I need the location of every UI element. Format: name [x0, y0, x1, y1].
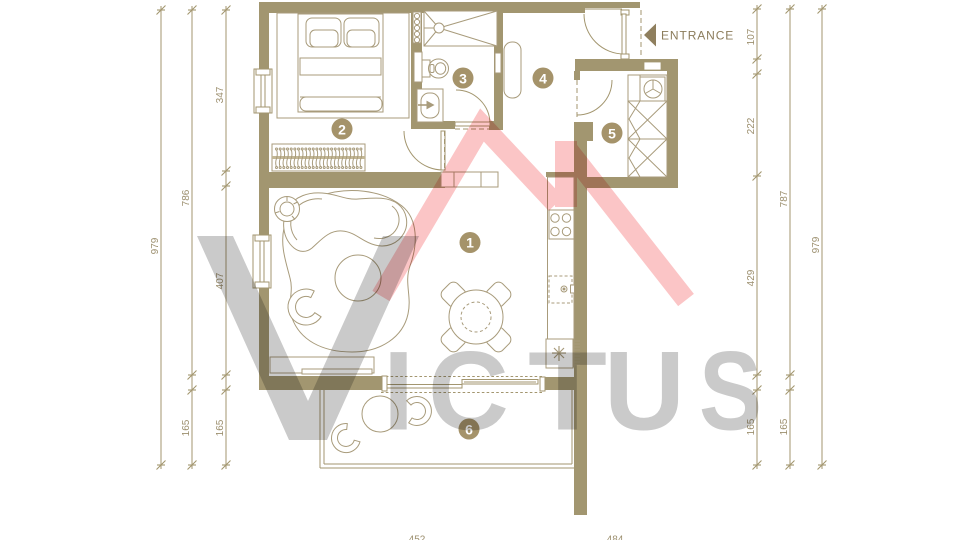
svg-text:ENTRANCE: ENTRANCE [661, 29, 734, 43]
svg-text:484: 484 [607, 535, 624, 540]
svg-text:347: 347 [215, 86, 226, 103]
svg-text:165: 165 [779, 418, 790, 435]
svg-text:T: T [528, 329, 607, 454]
svg-text:222: 222 [746, 117, 757, 134]
svg-text:1: 1 [466, 234, 474, 250]
svg-text:C: C [428, 329, 509, 454]
svg-text:4: 4 [539, 70, 547, 86]
svg-text:787: 787 [779, 190, 790, 207]
svg-text:3: 3 [459, 70, 467, 86]
svg-text:165: 165 [181, 419, 192, 436]
svg-text:786: 786 [181, 189, 192, 206]
svg-text:5: 5 [608, 125, 616, 141]
svg-text:165: 165 [215, 419, 226, 436]
svg-text:107: 107 [746, 28, 757, 45]
svg-text:2: 2 [338, 121, 346, 137]
svg-text:U: U [604, 329, 685, 454]
svg-text:I: I [383, 329, 414, 454]
svg-text:429: 429 [746, 269, 757, 286]
svg-text:S: S [699, 329, 762, 454]
svg-text:452: 452 [409, 535, 426, 540]
svg-text:979: 979 [811, 236, 822, 253]
svg-text:979: 979 [150, 237, 161, 254]
